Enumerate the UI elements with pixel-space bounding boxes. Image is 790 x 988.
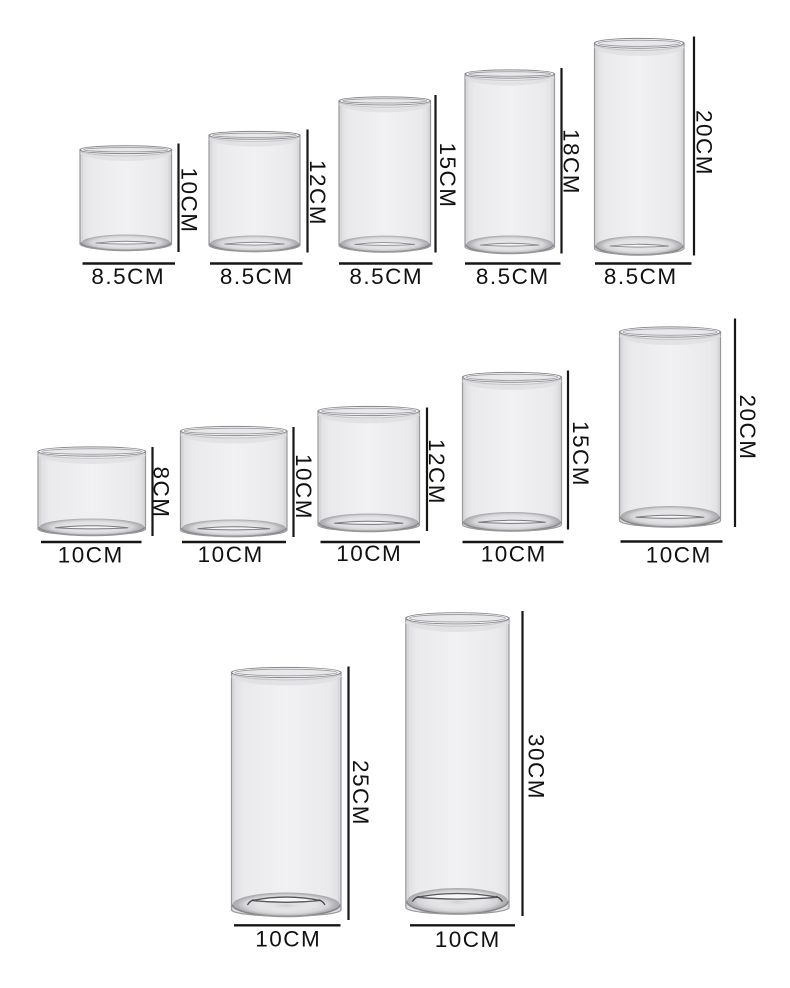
svg-text:20CM: 20CM xyxy=(735,394,760,460)
svg-text:10CM: 10CM xyxy=(291,454,316,520)
svg-text:8.5CM: 8.5CM xyxy=(349,264,423,289)
svg-text:8CM: 8CM xyxy=(149,466,174,518)
svg-text:8.5CM: 8.5CM xyxy=(91,264,165,289)
svg-text:30CM: 30CM xyxy=(524,734,549,800)
svg-text:12CM: 12CM xyxy=(305,160,330,226)
svg-text:10CM: 10CM xyxy=(336,541,402,566)
svg-text:10CM: 10CM xyxy=(58,543,124,568)
svg-text:20CM: 20CM xyxy=(692,110,717,176)
svg-text:8.5CM: 8.5CM xyxy=(604,264,678,289)
svg-text:10CM: 10CM xyxy=(255,927,321,952)
svg-text:10CM: 10CM xyxy=(198,542,264,567)
svg-text:15CM: 15CM xyxy=(435,142,460,208)
svg-text:25CM: 25CM xyxy=(348,760,373,826)
svg-text:10CM: 10CM xyxy=(435,927,501,952)
svg-text:12CM: 12CM xyxy=(424,439,449,505)
svg-text:8.5CM: 8.5CM xyxy=(220,264,294,289)
svg-text:10CM: 10CM xyxy=(177,167,202,233)
svg-text:10CM: 10CM xyxy=(481,542,547,567)
svg-text:15CM: 15CM xyxy=(568,421,593,487)
svg-text:8.5CM: 8.5CM xyxy=(476,264,550,289)
svg-text:10CM: 10CM xyxy=(646,543,712,568)
svg-text:18CM: 18CM xyxy=(559,129,584,195)
